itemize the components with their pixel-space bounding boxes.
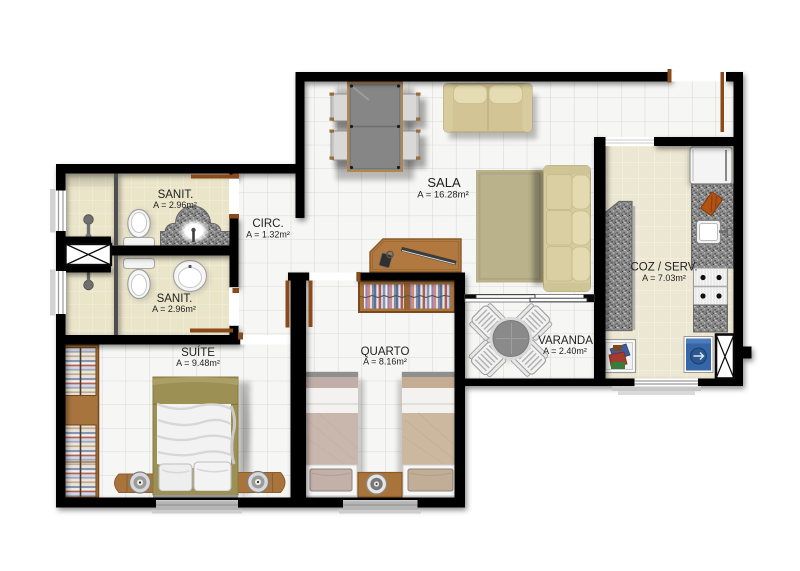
- svg-text:COZ / SERV.: COZ / SERV.: [630, 262, 697, 274]
- svg-text:A = 2.40m²: A = 2.40m²: [543, 346, 587, 356]
- svg-text:A = 1.32m²: A = 1.32m²: [246, 230, 290, 240]
- svg-text:A = 16.28m²: A = 16.28m²: [417, 190, 469, 201]
- svg-text:A = 2.96m²: A = 2.96m²: [153, 200, 197, 210]
- svg-text:SALA: SALA: [427, 175, 461, 190]
- svg-text:A = 7.03m²: A = 7.03m²: [642, 273, 686, 283]
- svg-text:CIRC.: CIRC.: [252, 218, 283, 230]
- svg-text:A = 8.16m²: A = 8.16m²: [363, 357, 407, 367]
- svg-text:A = 2.96m²: A = 2.96m²: [152, 304, 196, 314]
- svg-text:A = 9.48m²: A = 9.48m²: [176, 358, 220, 368]
